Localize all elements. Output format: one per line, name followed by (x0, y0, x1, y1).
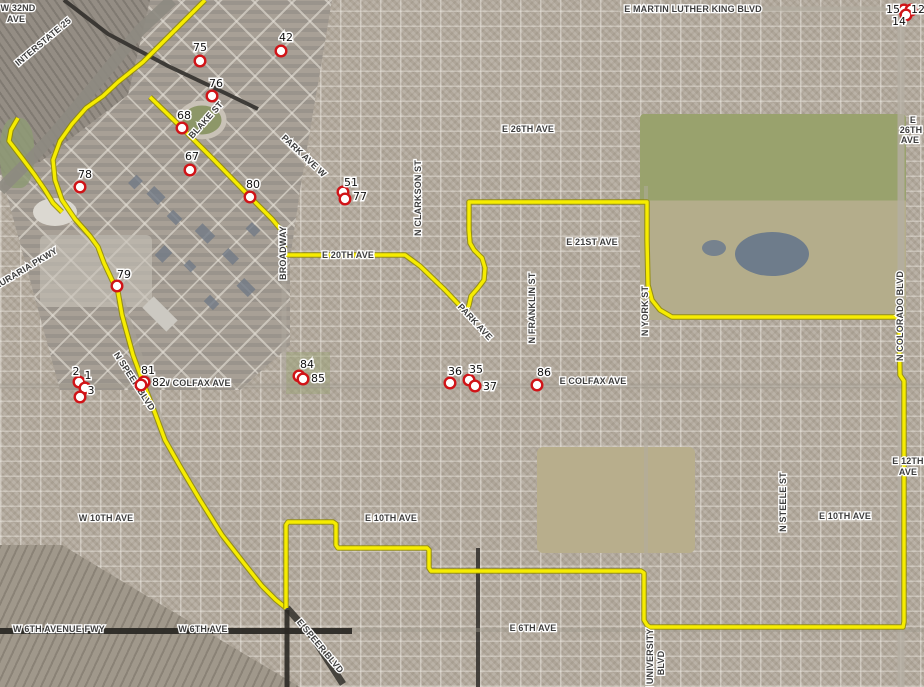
waypoint-marker-67[interactable] (185, 165, 196, 176)
road-speer-blvd-upper (120, 300, 287, 610)
street-label: AVE (7, 14, 25, 24)
waypoint-marker-68[interactable] (177, 123, 188, 134)
waypoint-label-1: 1 (85, 369, 92, 382)
building (204, 295, 220, 311)
route-line (150, 97, 904, 627)
waypoint-label-67: 67 (185, 150, 199, 163)
street-label: N COLORADO BLVD (895, 271, 905, 361)
street-label: W COLFAX AVE (161, 378, 230, 388)
waypoint-label-76: 76 (209, 77, 223, 90)
map-overlay-layer: E MARTIN LUTHER KING BLVDW 32NDAVEINTERS… (0, 0, 924, 687)
street-label: E SPEER BLVD (295, 617, 346, 675)
street-label: E 6TH AVE (510, 623, 557, 633)
building (246, 222, 261, 237)
waypoint-label-86: 86 (537, 366, 551, 379)
building (236, 278, 255, 297)
waypoint-label-75: 75 (193, 41, 207, 54)
waypoint-marker-82[interactable] (136, 380, 147, 391)
waypoint-label-80: 80 (246, 178, 260, 191)
building (146, 186, 165, 205)
street-label: AVE (899, 467, 917, 477)
waypoint-label-82: 82 (152, 376, 166, 389)
street-label: N FRANKLIN ST (527, 272, 537, 343)
street-label: W 10TH AVE (79, 513, 134, 523)
building (222, 248, 239, 265)
waypoint-marker-77[interactable] (340, 194, 351, 205)
waypoint-label-79: 79 (117, 268, 131, 281)
waypoint-label-51: 51 (344, 176, 358, 189)
street-label: AVE (901, 135, 919, 145)
waypoint-label-84: 84 (300, 358, 314, 371)
route-line-casing (150, 97, 904, 627)
street-label: PARK AVE (456, 302, 495, 342)
street-label: E 12TH (892, 456, 923, 466)
waypoint-marker-42[interactable] (276, 46, 287, 57)
building (155, 245, 173, 263)
waypoint-marker-86[interactable] (532, 380, 543, 391)
waypoint-label-37: 37 (483, 380, 497, 393)
waypoint-marker-75[interactable] (195, 56, 206, 67)
waypoint-marker-78[interactable] (75, 182, 86, 193)
waypoint-marker-85[interactable] (298, 374, 309, 385)
street-label: PARK AVE W (280, 133, 329, 180)
street-label: E 10TH AVE (819, 511, 871, 521)
street-label: BROADWAY (278, 226, 288, 280)
street-label: E MARTIN LUTHER KING BLVD (624, 4, 762, 14)
street-label: E 20TH AVE (322, 250, 374, 260)
street-label: E 10TH AVE (365, 513, 417, 523)
street-label: W 6TH AVENUE FWY (13, 624, 105, 634)
street-label: N CLARKSON ST (413, 160, 423, 236)
waypoint-label-14: 14 (892, 15, 906, 28)
waypoint-label-3: 3 (88, 384, 95, 397)
waypoint-label-85: 85 (311, 372, 325, 385)
waypoint-label-77: 77 (353, 190, 367, 203)
street-label: E COLFAX AVE (560, 376, 627, 386)
route-boundary-lines (9, 0, 904, 627)
waypoint-label-35: 35 (469, 363, 483, 376)
waypoint-marker-76[interactable] (207, 91, 218, 102)
street-label: W 6TH AVE (178, 624, 227, 634)
street-label: AURARIA PKWY (0, 245, 59, 291)
waypoint-label-12: 12 (911, 3, 924, 16)
waypoint-label-68: 68 (177, 109, 191, 122)
street-label: E 26TH AVE (502, 124, 554, 134)
building (195, 223, 216, 244)
building (167, 210, 183, 226)
waypoint-label-78: 78 (78, 168, 92, 181)
landmark-buildings (33, 103, 314, 367)
waypoint-marker-37[interactable] (470, 381, 481, 392)
waypoint-marker-36[interactable] (445, 378, 456, 389)
waypoint-marker-79[interactable] (112, 281, 123, 292)
waypoint-label-2: 2 (73, 365, 80, 378)
street-label: N STEELE ST (778, 472, 788, 532)
satellite-map-canvas[interactable]: E MARTIN LUTHER KING BLVDW 32NDAVEINTERS… (0, 0, 924, 687)
building (128, 175, 143, 190)
street-label: N UNIVERSITY (645, 629, 655, 687)
waypoint-label-42: 42 (279, 31, 293, 44)
street-label: BLVD (656, 650, 666, 675)
street-label: W 32ND (1, 3, 36, 13)
street-label: N YORK ST (640, 286, 650, 337)
street-label: 26TH (900, 125, 923, 135)
street-label: E (910, 115, 916, 125)
waypoint-marker-3[interactable] (75, 392, 86, 403)
waypoint-marker-80[interactable] (245, 192, 256, 203)
waypoint-label-36: 36 (448, 365, 462, 378)
street-label: E 21ST AVE (566, 237, 618, 247)
major-roads (0, 0, 924, 687)
building (184, 260, 197, 273)
convention-center-roof (142, 296, 177, 331)
